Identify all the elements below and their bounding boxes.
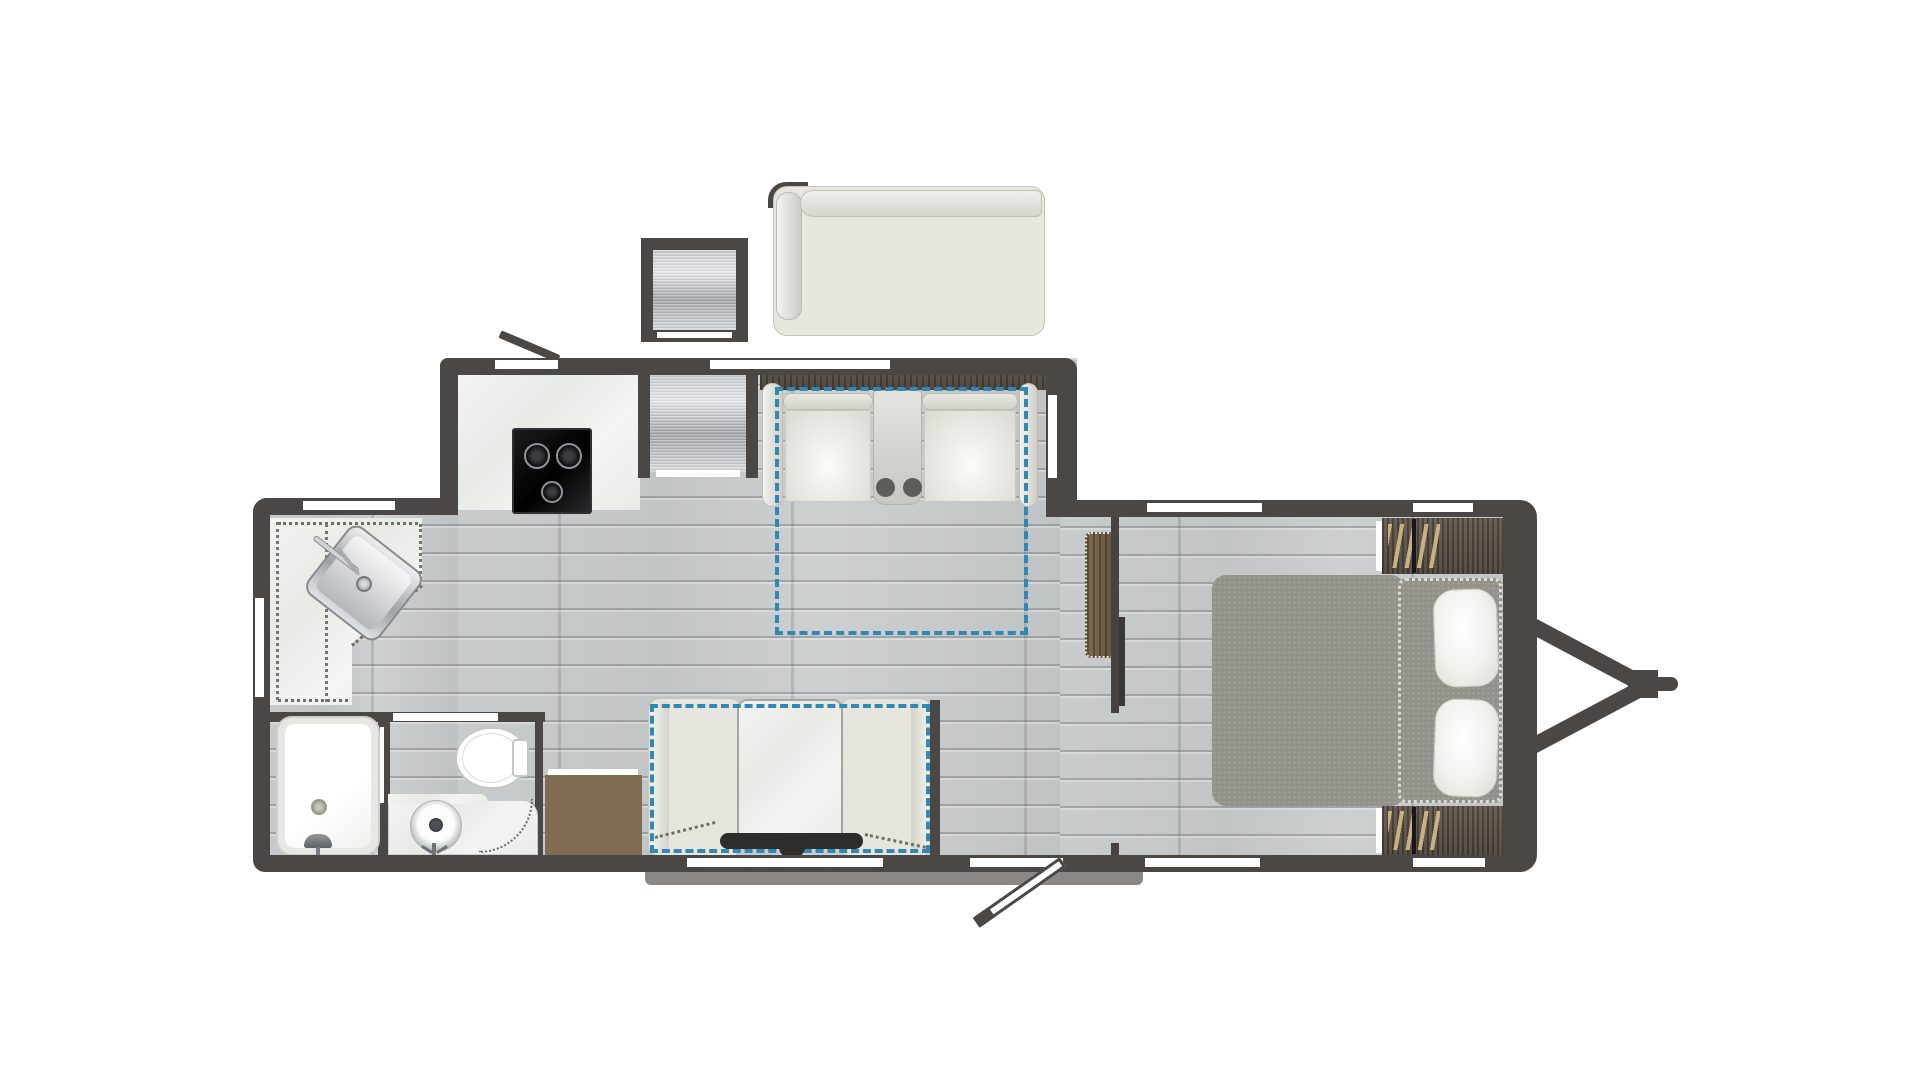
cabinet-gap bbox=[1376, 521, 1382, 571]
bathroom-door-opening bbox=[393, 713, 498, 721]
sink-drain-icon bbox=[356, 576, 372, 592]
wall-bottom bbox=[253, 855, 1537, 872]
slideout-indicator-dinette bbox=[650, 704, 930, 853]
fridge-cabinet-left bbox=[638, 372, 650, 478]
window-left-wall bbox=[255, 598, 264, 697]
burner-icon bbox=[524, 443, 550, 469]
shower-door-slot bbox=[380, 727, 384, 803]
hitch-ball-mount bbox=[1656, 677, 1678, 691]
window-top-left-section bbox=[303, 501, 395, 510]
vessel-sink-drain bbox=[429, 818, 443, 832]
cabinet-gap bbox=[1376, 808, 1382, 853]
bed-cabinet-bottom-divider bbox=[1412, 807, 1416, 854]
counter-trim-dotted-bottom bbox=[278, 699, 348, 702]
toilet-tank bbox=[512, 739, 529, 777]
window-bedroom-top-2 bbox=[1413, 503, 1473, 512]
bed-pillow bbox=[1432, 588, 1499, 688]
divider-wall bbox=[1111, 517, 1119, 713]
window-bedroom-top-1 bbox=[1147, 503, 1262, 512]
door-opening-top bbox=[495, 360, 558, 369]
window-top-mid bbox=[710, 360, 890, 369]
window-step-wall bbox=[1048, 395, 1057, 478]
exterior-cabinet-slot bbox=[657, 332, 732, 338]
exterior-cabinet-face bbox=[653, 250, 736, 330]
wall-right bbox=[1503, 500, 1537, 872]
window-bedroom-bottom-2 bbox=[1413, 858, 1485, 867]
counter-trim-dotted-left bbox=[276, 522, 279, 700]
refrigerator bbox=[650, 374, 746, 470]
hitch-coupler bbox=[1628, 670, 1658, 698]
slideout-box-edge-bottom bbox=[645, 872, 1143, 885]
burner-icon bbox=[556, 443, 582, 469]
door-end-cap bbox=[974, 907, 995, 927]
wall-step-left bbox=[440, 358, 458, 515]
dinette-side-wall bbox=[930, 700, 940, 855]
opening-bottom-slide bbox=[687, 858, 883, 867]
counter-trim-dotted-top bbox=[278, 522, 418, 525]
dresser-counter-gap bbox=[548, 769, 638, 775]
pocket-door bbox=[1119, 617, 1125, 706]
bed-cabinet-top-divider bbox=[1412, 519, 1416, 573]
sofa-back-cushion-1 bbox=[800, 190, 1042, 217]
tub-drain-icon bbox=[311, 799, 327, 815]
bed-pillow bbox=[1432, 698, 1499, 798]
refrigerator-slot bbox=[656, 470, 740, 477]
tub-faucet-icon bbox=[304, 834, 332, 848]
fridge-cabinet-right bbox=[746, 372, 758, 478]
burner-icon bbox=[541, 481, 563, 503]
floorplan-stage bbox=[0, 0, 1920, 1080]
bed-mattress bbox=[1212, 575, 1405, 806]
slideout-indicator-theater bbox=[775, 387, 1028, 635]
dresser bbox=[545, 775, 642, 855]
bathtub-basin bbox=[285, 724, 371, 848]
sofa-back-cushion-2 bbox=[800, 217, 1042, 244]
sofa-armrest bbox=[776, 192, 802, 320]
window-bedroom-bottom-1 bbox=[1145, 858, 1260, 867]
